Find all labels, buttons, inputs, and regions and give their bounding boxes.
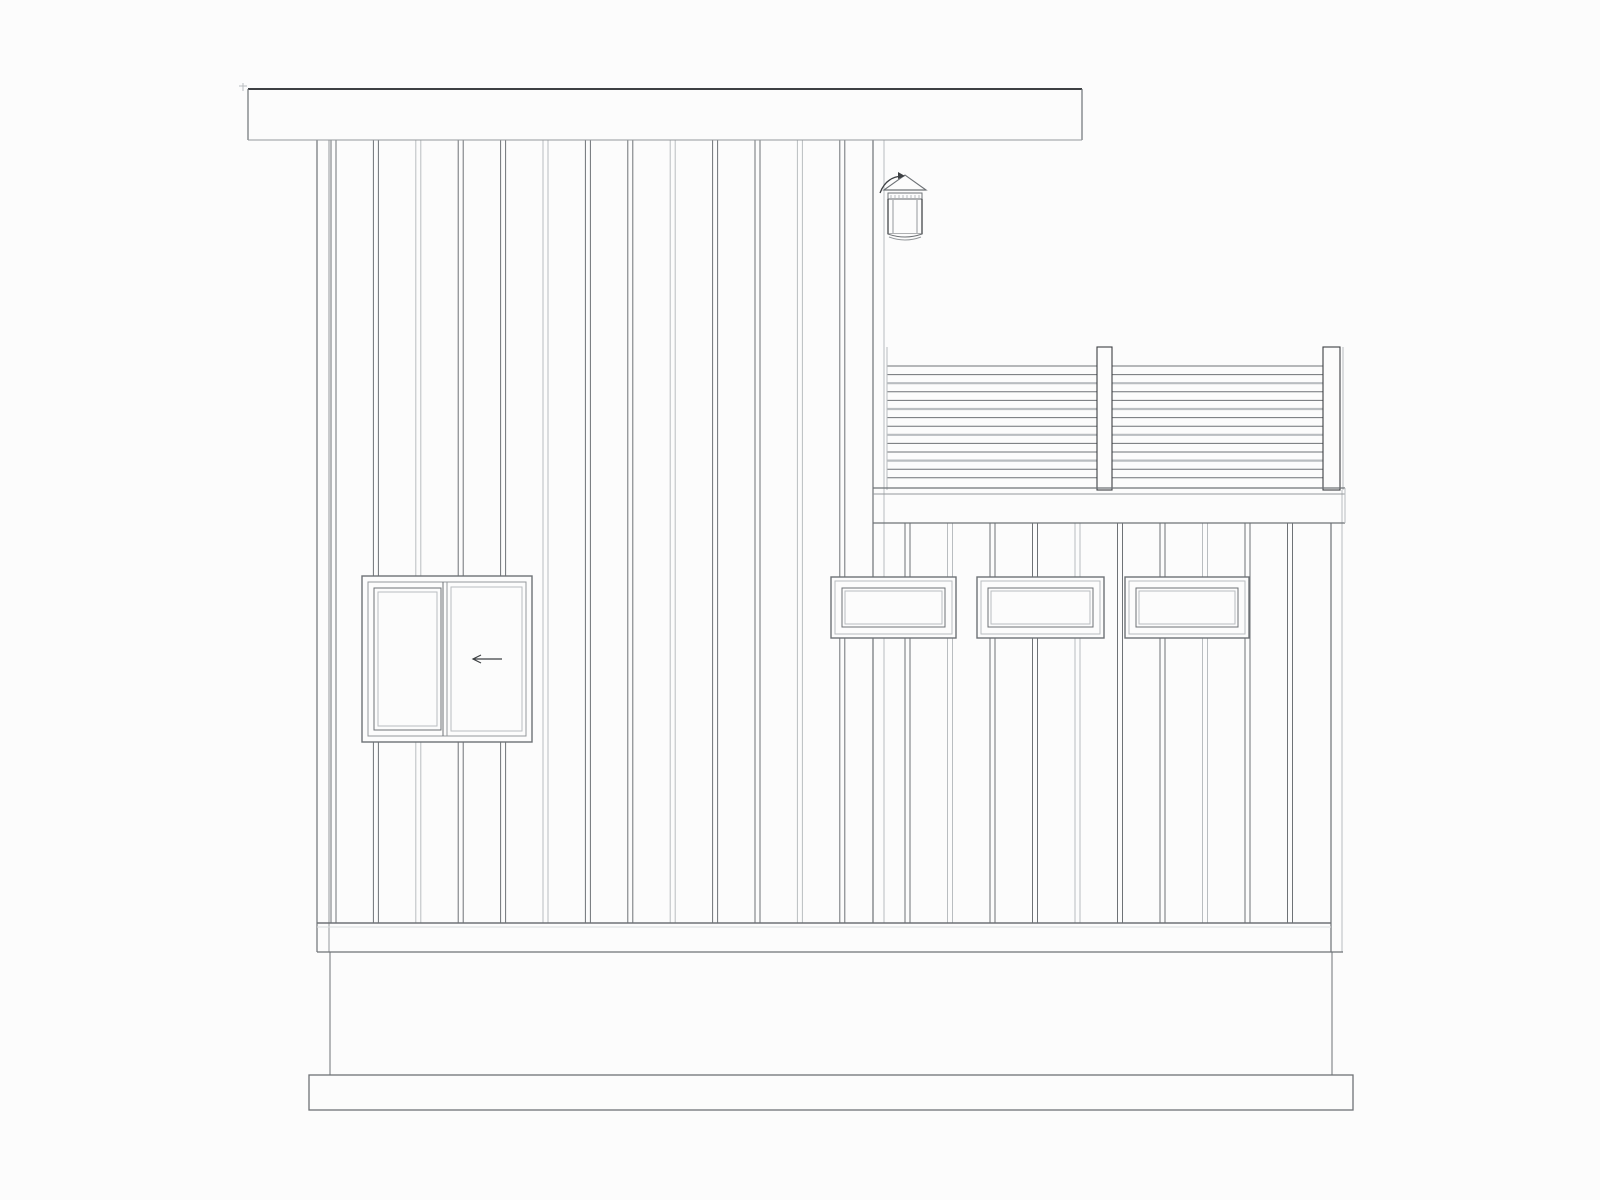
base-plinth: [309, 1075, 1353, 1110]
window-small-3: [1125, 577, 1249, 638]
railing-post-middle: [1097, 347, 1112, 490]
window-large: [362, 576, 532, 742]
elevation-drawing: [0, 0, 1600, 1200]
window-small-1: [831, 577, 956, 638]
window-small-2: [977, 577, 1104, 638]
railing-post-end: [1323, 347, 1340, 490]
elevation-scene: [0, 0, 1600, 1200]
roof-fascia: [239, 83, 1082, 140]
